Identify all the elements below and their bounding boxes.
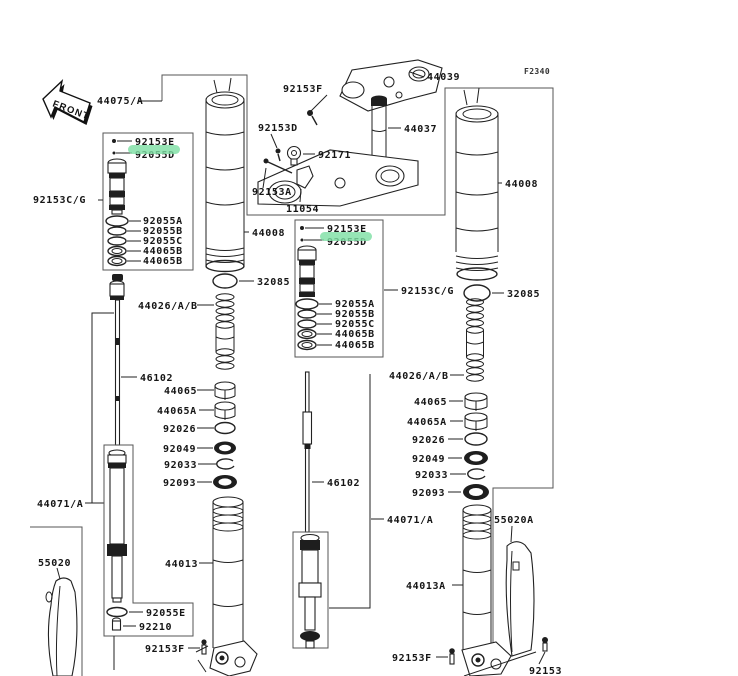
cartridge-band bbox=[299, 292, 315, 297]
coil bbox=[467, 354, 484, 360]
drain-gasket-ring bbox=[107, 608, 127, 617]
label-stem: 44037 bbox=[404, 124, 437, 135]
bush-top bbox=[215, 402, 235, 410]
label-right-stack-2: 92026 bbox=[412, 435, 445, 446]
tube-lip bbox=[456, 106, 498, 122]
label-right-spring: 44026/A/B bbox=[389, 371, 449, 382]
drain-screw-body bbox=[113, 621, 121, 630]
label-left-outer-tube: 44013 bbox=[165, 559, 198, 570]
screw-icon bbox=[112, 139, 116, 143]
stem-cap-band bbox=[371, 99, 387, 106]
cartridge-seg bbox=[110, 178, 124, 191]
washer-inner bbox=[112, 259, 122, 264]
bolt-icon bbox=[201, 639, 206, 644]
oring bbox=[108, 237, 126, 245]
label-right-stack-4: 92033 bbox=[415, 470, 448, 481]
left-oring-stack bbox=[106, 216, 141, 266]
bolt-icon bbox=[542, 637, 548, 643]
bush-top bbox=[215, 382, 235, 390]
label-right-inner-tube: 44008 bbox=[505, 179, 538, 190]
pinch-bolt-icon bbox=[307, 110, 313, 116]
leader-92153 bbox=[539, 652, 545, 664]
label-left-stack-1: 44065A bbox=[157, 406, 197, 417]
upper-clamp-bore bbox=[342, 82, 364, 98]
page-code: F2340 bbox=[524, 67, 550, 76]
tube-wire-detail bbox=[464, 88, 479, 105]
left-base-ring-drawing bbox=[213, 274, 237, 288]
label-right-ring-3: 44065B bbox=[335, 329, 375, 340]
damper-body bbox=[302, 550, 318, 583]
outer-rib bbox=[213, 507, 243, 515]
label-right-stack-0: 44065 bbox=[414, 397, 447, 408]
bush-top bbox=[465, 393, 487, 401]
washer bbox=[298, 330, 316, 339]
label-right-axle-bolt: 92153 bbox=[529, 666, 562, 676]
dot-icon bbox=[301, 239, 304, 242]
stack-leaders bbox=[448, 401, 466, 492]
screw-shaft bbox=[278, 154, 280, 161]
cartridge-seg bbox=[300, 265, 314, 278]
outer-rib bbox=[213, 515, 243, 523]
left-outer-tube-drawing bbox=[213, 497, 243, 648]
left-spring-drawing bbox=[216, 294, 234, 369]
guard-body bbox=[48, 578, 76, 676]
label-right-outer-tube: 44013A bbox=[406, 581, 446, 592]
tube-wire-detail bbox=[214, 78, 231, 93]
outer-lip bbox=[463, 505, 491, 515]
label-left-base-ring: 32085 bbox=[257, 277, 290, 288]
oring bbox=[298, 320, 316, 328]
spring-body bbox=[467, 330, 484, 357]
tube-body bbox=[456, 114, 498, 252]
label-left-stack-2: 92026 bbox=[163, 424, 196, 435]
washer-ring bbox=[215, 423, 235, 434]
tube-body bbox=[206, 100, 244, 266]
left-inner-tube-drawing bbox=[206, 78, 244, 272]
label-right-damper: 44071/A bbox=[387, 515, 433, 526]
right-damper-bracket bbox=[329, 374, 384, 608]
washer-ring bbox=[465, 433, 487, 445]
bolt-shaft bbox=[543, 643, 547, 651]
oring bbox=[106, 216, 128, 226]
bolt-shaft-long bbox=[268, 162, 292, 173]
right-cartridge-box: 92153E 92055D 92055A 92055B 92055C 44065 bbox=[295, 220, 383, 357]
right-outer-tube-drawing bbox=[463, 505, 491, 650]
dust-seal-center bbox=[219, 478, 232, 485]
label-steering-screw: 92153D bbox=[258, 123, 298, 134]
oring bbox=[108, 227, 126, 235]
outer-rib bbox=[213, 523, 243, 531]
lower-clamp-bore bbox=[376, 166, 404, 186]
oil-seal-center bbox=[219, 445, 231, 451]
left-stack-drawings bbox=[197, 382, 237, 489]
right-oring-stack bbox=[296, 299, 332, 350]
bush-top bbox=[465, 413, 487, 421]
rod-band bbox=[110, 296, 124, 300]
axle-bracket bbox=[462, 642, 511, 676]
left-cartridge-box: 92153E 92055D 92055A 92055B bbox=[103, 133, 193, 270]
label-left-cartridge-group: 92153C/G bbox=[33, 195, 86, 206]
leader-92153d bbox=[271, 134, 277, 148]
cartridge-band bbox=[109, 205, 125, 210]
oring-leaders bbox=[127, 221, 141, 261]
label-left-rod: 46102 bbox=[140, 373, 173, 384]
coil bbox=[216, 308, 234, 314]
coil bbox=[467, 375, 484, 381]
coil bbox=[216, 315, 234, 321]
coil bbox=[467, 313, 484, 319]
highlight-92055d-left bbox=[128, 145, 180, 154]
left-damper-box: 92055E 92210 bbox=[104, 445, 193, 636]
label-left-stack-0: 44065 bbox=[164, 386, 197, 397]
label-left-guard: 55020 bbox=[38, 558, 71, 569]
cartridge-band bbox=[109, 173, 125, 178]
label-left-inner-tube: 44008 bbox=[252, 228, 285, 239]
right-guard-drawing bbox=[506, 542, 534, 656]
rod-shaft bbox=[116, 300, 120, 445]
washer bbox=[108, 247, 126, 256]
label-right-stack-3: 92049 bbox=[412, 454, 445, 465]
dot-icon bbox=[113, 152, 116, 155]
label-right-rod: 46102 bbox=[327, 478, 360, 489]
highlight-92055d-right bbox=[320, 232, 372, 241]
right-cartridge-drawing bbox=[298, 246, 316, 297]
guard-tab bbox=[46, 592, 52, 602]
screw-icon bbox=[300, 226, 304, 230]
cartridge-seg bbox=[298, 250, 316, 260]
right-spring-drawing bbox=[467, 299, 484, 381]
oring-leaders bbox=[317, 304, 332, 345]
label-left-assembly: 44075/A bbox=[97, 96, 143, 107]
tube-sections bbox=[206, 132, 244, 205]
upper-clamp-bore bbox=[409, 67, 429, 81]
label-right-base-ring: 32085 bbox=[507, 289, 540, 300]
damper-tip bbox=[306, 641, 314, 648]
right-push-rod-drawing bbox=[303, 372, 312, 532]
label-left-stack-4: 92033 bbox=[164, 460, 197, 471]
rod-joint bbox=[116, 396, 120, 401]
outer-lip bbox=[213, 497, 243, 507]
coil bbox=[216, 322, 234, 328]
fork-exploded-diagram: FRONT F2340 44075/A 92153E 92055D bbox=[0, 0, 738, 676]
label-left-spring: 44026/A/B bbox=[138, 301, 198, 312]
damper-collar bbox=[107, 544, 127, 556]
label-left-stack-3: 92049 bbox=[163, 444, 196, 455]
washer-inner bbox=[302, 332, 312, 337]
axle-hole-center bbox=[476, 658, 481, 663]
coil bbox=[467, 320, 484, 326]
pinch-bolt-shaft bbox=[312, 116, 317, 125]
rod-cap bbox=[112, 274, 123, 281]
washer-inner bbox=[112, 249, 122, 254]
coil bbox=[216, 356, 234, 362]
dust-seal-center bbox=[469, 488, 483, 496]
front-arrow: FRONT bbox=[43, 81, 93, 125]
left-push-rod-drawing bbox=[110, 274, 124, 445]
bolt-shaft bbox=[202, 645, 206, 654]
label-drain-screw: 92210 bbox=[139, 622, 172, 633]
rod-joint bbox=[305, 444, 311, 449]
label-left-stack-5: 92093 bbox=[163, 478, 196, 489]
coil bbox=[216, 363, 234, 369]
label-right-stack-1: 44065A bbox=[407, 417, 447, 428]
clamp-ring bbox=[288, 147, 301, 160]
coil bbox=[216, 301, 234, 307]
parts-diagram-page: FRONT F2340 44075/A 92153E 92055D bbox=[0, 0, 738, 676]
washer bbox=[108, 257, 126, 266]
oring bbox=[296, 299, 318, 309]
label-left-axle-bolt: 92153F bbox=[145, 644, 185, 655]
label-right-pinch-bolt: 92153F bbox=[392, 653, 432, 664]
cartridge-band bbox=[299, 278, 315, 284]
axle-bracket bbox=[210, 641, 257, 676]
cartridge-band bbox=[109, 191, 125, 197]
cartridge-seg bbox=[300, 284, 314, 292]
outer-rib bbox=[463, 515, 491, 523]
label-clamp: 92171 bbox=[318, 150, 351, 161]
steering-stem-group: 92153F 44039 44037 92153D 92171 bbox=[252, 60, 460, 215]
screw-icon bbox=[276, 149, 281, 154]
bolt-icon bbox=[449, 648, 455, 654]
bolt-shaft bbox=[450, 654, 454, 664]
label-steering-bolt: 92153A bbox=[252, 187, 292, 198]
cartridge-seg bbox=[110, 197, 124, 205]
coil bbox=[467, 368, 484, 374]
washer-inner bbox=[302, 343, 312, 348]
rod-sleeve bbox=[303, 412, 312, 444]
bolt-icon bbox=[264, 159, 269, 164]
coil bbox=[467, 327, 484, 333]
label-right-guard: 55020A bbox=[494, 515, 534, 526]
label-right-ring-4: 44065B bbox=[335, 340, 375, 351]
cartridge-tip bbox=[112, 210, 122, 214]
spring-body bbox=[216, 325, 234, 352]
clip-ring bbox=[468, 469, 485, 479]
label-right-cartridge-group: 92153C/G bbox=[401, 286, 454, 297]
tube-bottom bbox=[457, 268, 497, 280]
stem-shaft bbox=[372, 106, 386, 158]
cartridge-band bbox=[299, 260, 315, 265]
coil bbox=[467, 361, 484, 367]
label-steering-pinch-bolt: 92153F bbox=[283, 84, 323, 95]
clamp-stem bbox=[291, 159, 297, 165]
damper-tip bbox=[113, 598, 121, 602]
outer-rib bbox=[463, 531, 491, 539]
damper-seg bbox=[108, 455, 126, 463]
damper-body bbox=[110, 468, 124, 544]
coil bbox=[467, 306, 484, 312]
left-cartridge-drawing bbox=[108, 159, 126, 214]
rod-joint bbox=[116, 338, 120, 345]
axle-hole-center bbox=[220, 656, 225, 661]
stack-leaders bbox=[197, 390, 216, 482]
leader-55020 bbox=[57, 568, 60, 579]
damper-band bbox=[300, 540, 320, 550]
right-stack-drawings bbox=[448, 393, 489, 500]
rod-upper bbox=[110, 284, 124, 296]
damper-collar bbox=[299, 583, 321, 597]
washer bbox=[298, 341, 316, 350]
leader-55020a bbox=[511, 526, 512, 542]
coil bbox=[467, 299, 484, 305]
left-guard-drawing bbox=[46, 578, 77, 676]
damper-lower bbox=[112, 556, 122, 598]
leader-92153f-top bbox=[311, 95, 327, 111]
right-damper-box bbox=[293, 532, 328, 648]
oring bbox=[298, 310, 316, 318]
coil bbox=[216, 294, 234, 300]
label-drain-gasket: 92055E bbox=[146, 608, 186, 619]
damper-band bbox=[108, 463, 126, 468]
clip-ring bbox=[217, 459, 234, 469]
damper-lower bbox=[305, 597, 315, 630]
damper-seal bbox=[300, 631, 320, 641]
oil-seal-center bbox=[470, 455, 483, 462]
coil bbox=[216, 349, 234, 355]
label-right-stack-5: 92093 bbox=[412, 488, 445, 499]
label-left-damper: 44071/A bbox=[37, 499, 83, 510]
cartridge-seg bbox=[108, 163, 126, 173]
right-inner-tube-drawing bbox=[456, 88, 498, 280]
outer-rib bbox=[463, 523, 491, 531]
label-upper-clamp: 44039 bbox=[427, 72, 460, 83]
rod-shaft bbox=[306, 372, 310, 532]
label-left-ring-4: 44065B bbox=[143, 256, 183, 267]
label-bracket: 11054 bbox=[286, 204, 319, 215]
